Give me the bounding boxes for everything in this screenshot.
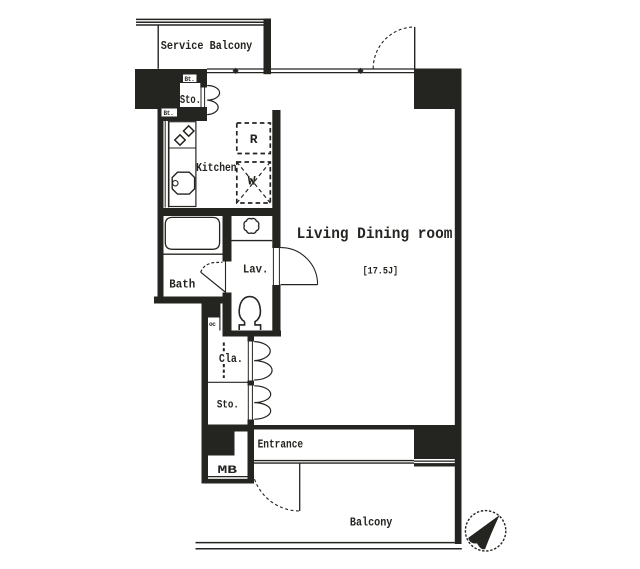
svg-text:Service Balcony: Service Balcony (161, 40, 253, 53)
svg-text:MB: MB (218, 465, 238, 477)
svg-text:Living Dining room: Living Dining room (297, 225, 453, 243)
svg-text:R: R (250, 132, 258, 147)
svg-text:oc: oc (209, 321, 216, 328)
svg-text:Kitchen: Kitchen (196, 161, 237, 175)
svg-text:Lav.: Lav. (243, 262, 269, 276)
svg-text:Bt.: Bt. (185, 76, 195, 83)
svg-text:Sto.: Sto. (180, 94, 201, 107)
svg-text:Bt.: Bt. (164, 110, 174, 117)
svg-text:[17.5J]: [17.5J] (363, 266, 399, 278)
svg-text:Sto.: Sto. (217, 399, 239, 411)
svg-text:W: W (248, 173, 256, 188)
svg-text:Balcony: Balcony (350, 516, 393, 530)
svg-text:Bath: Bath (169, 277, 195, 291)
svg-text:Cla.: Cla. (219, 353, 243, 366)
svg-text:Entrance: Entrance (258, 438, 304, 451)
